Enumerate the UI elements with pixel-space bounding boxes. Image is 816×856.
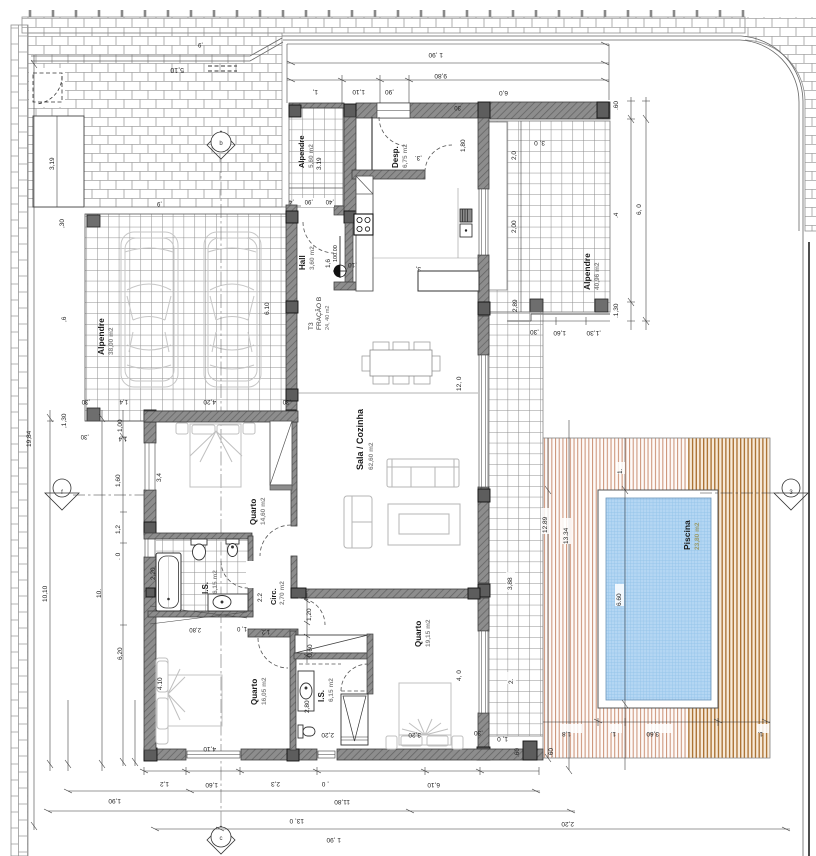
svg-text:,1,30: ,1,30 <box>586 329 601 336</box>
svg-text:6.60: 6.60 <box>616 593 623 606</box>
svg-text:1,2: 1,2 <box>160 780 169 787</box>
svg-text:1.: 1. <box>610 730 616 737</box>
svg-text:1, 0: 1, 0 <box>236 625 247 631</box>
svg-text:3,60 m2: 3,60 m2 <box>309 246 316 270</box>
svg-text:,40: ,40 <box>325 198 334 204</box>
svg-text:1 ,90: 1 ,90 <box>428 51 443 58</box>
svg-text:1,60: 1,60 <box>553 329 566 336</box>
svg-text:23,80 m2: 23,80 m2 <box>694 522 701 550</box>
svg-text:9,80: 9,80 <box>434 72 447 79</box>
svg-text:19,15 m2: 19,15 m2 <box>425 619 432 647</box>
svg-text:,90: ,90 <box>385 88 394 95</box>
svg-text:0,60: 0,60 <box>307 644 314 657</box>
svg-text:2,3: 2,3 <box>271 780 280 787</box>
svg-text:30: 30 <box>454 104 461 110</box>
svg-text:3,19: 3,19 <box>49 157 56 170</box>
svg-text:6,20: 6,20 <box>117 647 124 660</box>
svg-text:,30: ,30 <box>81 398 90 404</box>
svg-text:,10: ,10 <box>348 261 357 268</box>
svg-text:4,10: 4,10 <box>203 745 216 752</box>
svg-text:.1,30: .1,30 <box>613 303 620 318</box>
svg-text:4,20: 4,20 <box>203 398 216 405</box>
svg-text:100.00: 100.00 <box>333 245 339 262</box>
svg-text:6.10: 6.10 <box>264 302 271 315</box>
svg-text:3,: 3, <box>415 265 421 272</box>
svg-text:Hall: Hall <box>298 255 307 270</box>
svg-text:1,4: 1,4 <box>118 435 127 441</box>
svg-text:, 0: , 0 <box>321 780 329 787</box>
svg-text:6,15 m2: 6,15 m2 <box>328 678 335 702</box>
svg-text:Piscina: Piscina <box>682 520 692 550</box>
svg-text:.4: .4 <box>613 212 620 218</box>
svg-text:1,4: 1,4 <box>119 398 128 404</box>
svg-text:2,80: 2,80 <box>189 626 201 632</box>
svg-text:3.19: 3.19 <box>316 157 323 170</box>
svg-text:10,10: 10,10 <box>42 585 49 602</box>
svg-text:1,2: 1,2 <box>115 525 122 534</box>
svg-text:,90: ,90 <box>304 198 313 204</box>
svg-text:Alpendre: Alpendre <box>297 135 306 168</box>
svg-text:4, 0: 4, 0 <box>456 670 463 681</box>
svg-text:1,90: 1,90 <box>108 797 121 804</box>
svg-text:3,4: 3,4 <box>156 473 163 482</box>
svg-text:Quarto: Quarto <box>414 621 423 647</box>
svg-text:Desp.: Desp. <box>391 146 400 168</box>
svg-text:1.: 1. <box>757 730 763 737</box>
svg-text:,9: ,9 <box>156 200 162 206</box>
svg-text:3,60: 3,60 <box>646 730 659 737</box>
svg-text:Alpendre: Alpendre <box>582 253 592 290</box>
svg-text:. 0: . 0 <box>115 552 122 560</box>
svg-text:2,80: 2,80 <box>304 700 311 713</box>
svg-text:3,20: 3,20 <box>408 731 421 738</box>
svg-text:FRAÇÃO B: FRAÇÃO B <box>314 297 323 330</box>
svg-text:11,80: 11,80 <box>334 798 350 805</box>
svg-text:1,00: 1,00 <box>117 419 124 432</box>
svg-text:2.: 2. <box>508 678 515 684</box>
svg-text:2.2: 2.2 <box>257 593 264 602</box>
svg-text:2,0: 2,0 <box>511 151 518 160</box>
svg-text:2,70 m2: 2,70 m2 <box>279 581 286 605</box>
svg-text:40,96 m2: 40,96 m2 <box>594 262 601 290</box>
svg-text:1,: 1, <box>312 88 318 95</box>
svg-text:,9: ,9 <box>197 41 203 47</box>
svg-text:Quarto: Quarto <box>250 679 259 705</box>
svg-text:,3.: ,3. <box>415 154 422 161</box>
svg-text:3, 0: 3, 0 <box>534 139 545 146</box>
svg-text:1,6: 1,6 <box>325 259 332 268</box>
svg-text:,30: ,30 <box>80 433 89 439</box>
svg-text:,30: ,30 <box>474 729 483 736</box>
svg-text:16,05 m2: 16,05 m2 <box>261 677 268 705</box>
svg-text:6, 0: 6, 0 <box>636 204 643 215</box>
svg-text:3,88: 3,88 <box>507 577 514 590</box>
svg-text:Circ.: Circ. <box>269 588 278 605</box>
svg-text:,30: ,30 <box>59 219 66 228</box>
svg-text:19,84: 19,84 <box>26 430 33 447</box>
svg-text:Alpendre: Alpendre <box>96 318 106 355</box>
svg-text:.60: .60 <box>613 101 620 110</box>
svg-text:6,0: 6,0 <box>499 89 508 96</box>
svg-text:4.10: 4.10 <box>157 677 164 690</box>
svg-text:1,60: 1,60 <box>115 474 122 487</box>
svg-text:38,00 m2: 38,00 m2 <box>108 327 115 355</box>
svg-text:c: c <box>220 836 223 842</box>
svg-text:2,20: 2,20 <box>150 567 157 580</box>
svg-text:6,10: 6,10 <box>427 781 440 788</box>
svg-text:,1,30: ,1,30 <box>61 413 68 428</box>
svg-text:I.S.: I.S. <box>201 582 210 594</box>
svg-text:24, 40 m2: 24, 40 m2 <box>325 306 331 330</box>
svg-text:2,20: 2,20 <box>321 731 334 738</box>
svg-text:6,15 m2: 6,15 m2 <box>212 570 219 594</box>
svg-text:1,20: 1,20 <box>306 608 313 621</box>
svg-text:,30: ,30 <box>530 328 539 335</box>
svg-text:1,80: 1,80 <box>460 139 467 152</box>
svg-text:1,8: 1,8 <box>562 730 571 737</box>
svg-text:6,75 m2: 6,75 m2 <box>402 144 409 168</box>
svg-text:.60: .60 <box>514 748 521 757</box>
svg-text:13, 0: 13, 0 <box>289 817 304 824</box>
svg-text:,4: ,4 <box>288 198 294 204</box>
svg-text:T3: T3 <box>308 322 315 330</box>
svg-text:5,10: 5,10 <box>170 66 184 73</box>
svg-text:1, 0: 1, 0 <box>497 735 508 742</box>
svg-text:12.89: 12.89 <box>542 516 549 533</box>
svg-text:14,60 m2: 14,60 m2 <box>260 497 267 525</box>
svg-text:Quarto: Quarto <box>249 499 258 525</box>
svg-text:1.: 1. <box>617 468 624 474</box>
svg-text:10.: 10. <box>96 589 103 598</box>
svg-text:62,60 m2: 62,60 m2 <box>368 442 375 470</box>
svg-text:1,2: 1,2 <box>261 628 270 634</box>
svg-text:1,60: 1,60 <box>205 781 218 788</box>
svg-text:,30: ,30 <box>282 398 291 404</box>
svg-text:12, 0: 12, 0 <box>456 376 463 391</box>
svg-text:13.34: 13.34 <box>563 527 570 544</box>
svg-text:2,89: 2,89 <box>512 299 519 312</box>
svg-text:5,60 m2: 5,60 m2 <box>308 144 315 168</box>
svg-text:2,20: 2,20 <box>561 820 574 827</box>
svg-text:Sala / Cozinha: Sala / Cozinha <box>355 408 365 470</box>
svg-text:1 ,90: 1 ,90 <box>326 836 341 843</box>
svg-text:1,10: 1,10 <box>352 88 365 95</box>
svg-text:2,00: 2,00 <box>511 220 518 233</box>
svg-text:.60: .60 <box>548 748 555 757</box>
svg-text:I.S.: I.S. <box>317 690 326 702</box>
svg-text:,6: ,6 <box>61 316 68 322</box>
